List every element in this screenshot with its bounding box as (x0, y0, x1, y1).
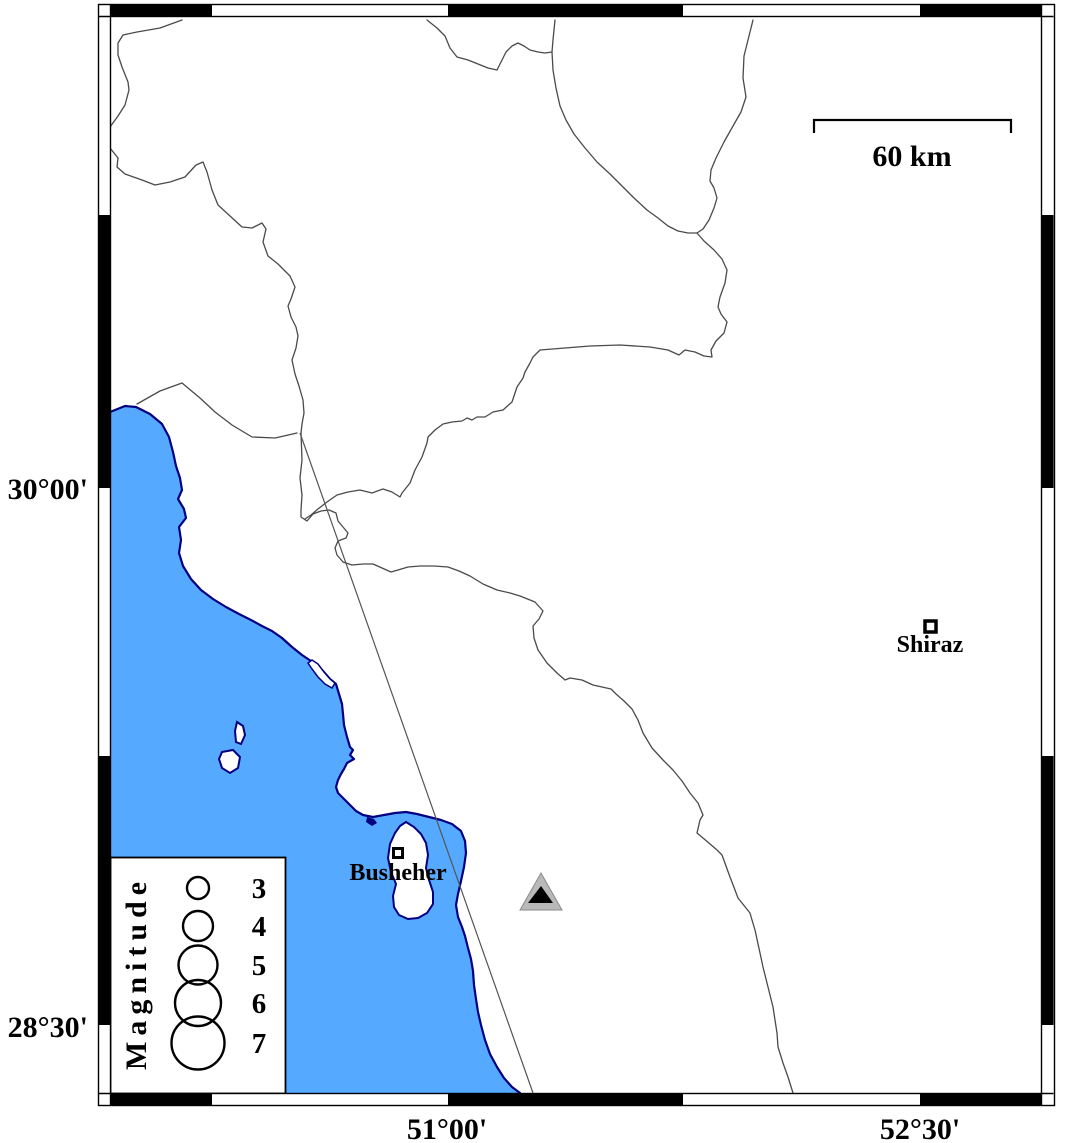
scale-bar-label: 60 km (872, 140, 951, 173)
magnitude-value-7: 7 (252, 1028, 267, 1060)
frame-seg-top-1 (111, 5, 213, 17)
frame-seg-top-3 (920, 5, 1042, 17)
lon-label-51-00: 51°00' (407, 1113, 487, 1143)
frame-seg-right-1 (1042, 215, 1054, 488)
magnitude-value-5: 5 (252, 950, 267, 982)
shiraz-label: Shiraz (897, 632, 964, 658)
busheher-label: Busheher (349, 860, 447, 886)
island-north (235, 722, 245, 744)
magnitude-value-3: 3 (252, 873, 267, 905)
frame-seg-top-2 (448, 5, 683, 17)
frame-seg-bottom-3 (920, 1094, 1042, 1106)
map-page: Busheher Shiraz 60 km Magnitude 3 4 5 6 … (0, 0, 1066, 1143)
lat-label-30-00: 30°00' (8, 473, 88, 506)
lon-label-52-30: 52°30' (880, 1113, 960, 1143)
frame-seg-bottom-1 (111, 1094, 213, 1106)
frame-seg-bottom-2 (448, 1094, 683, 1106)
lat-label-28-30: 28°30' (8, 1011, 88, 1044)
magnitude-legend: Magnitude 3 4 5 6 7 (111, 858, 286, 1094)
map-figure: Busheher Shiraz 60 km Magnitude 3 4 5 6 … (0, 0, 1066, 1143)
magnitude-legend-title: Magnitude (120, 876, 153, 1070)
frame-seg-left-2 (99, 756, 111, 1025)
busheher-marker (394, 849, 403, 858)
frame-seg-right-2 (1042, 756, 1054, 1025)
map-canvas: Busheher Shiraz 60 km Magnitude 3 4 5 6 … (110, 16, 1042, 1094)
frame-seg-left-1 (99, 215, 111, 488)
magnitude-value-6: 6 (252, 988, 267, 1020)
magnitude-value-4: 4 (252, 911, 267, 943)
shiraz-marker (925, 621, 936, 632)
